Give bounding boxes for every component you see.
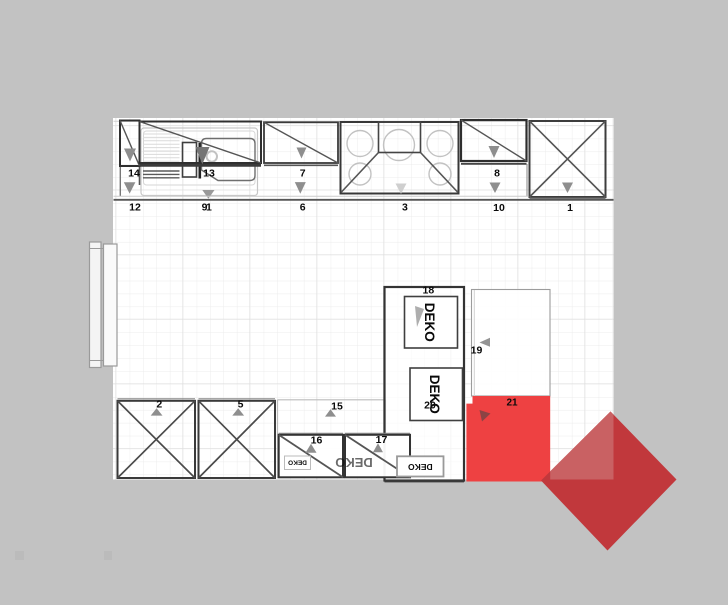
svg-text:14: 14 [128, 168, 140, 180]
svg-text:DEKO: DEKO [422, 303, 437, 342]
svg-text:13: 13 [203, 168, 215, 180]
svg-text:20: 20 [424, 400, 436, 412]
svg-text:DEKO: DEKO [335, 455, 373, 470]
svg-text:DEKO: DEKO [408, 462, 433, 472]
svg-text:16: 16 [311, 435, 323, 447]
svg-text:8: 8 [494, 167, 500, 179]
svg-text:21: 21 [506, 398, 518, 409]
svg-text:12: 12 [129, 202, 141, 214]
svg-text:18: 18 [423, 285, 435, 297]
svg-text:7: 7 [300, 167, 306, 179]
svg-text:6: 6 [300, 201, 306, 213]
svg-text:15: 15 [331, 401, 343, 413]
svg-text:DEKO: DEKO [288, 459, 307, 466]
svg-text:19: 19 [471, 345, 483, 357]
svg-text:2: 2 [156, 399, 162, 411]
svg-text:10: 10 [493, 202, 505, 214]
svg-text:1: 1 [567, 202, 573, 214]
svg-text:3: 3 [402, 201, 408, 213]
svg-text:17: 17 [376, 434, 388, 446]
